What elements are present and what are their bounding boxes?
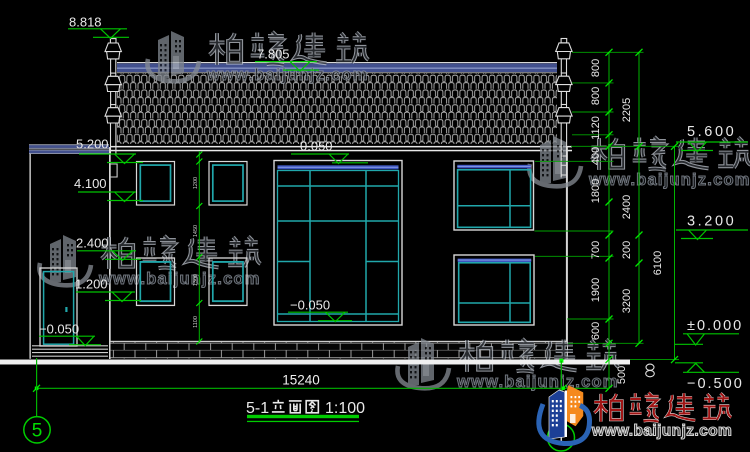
svg-text:1450: 1450 <box>193 225 199 237</box>
svg-text:5.200: 5.200 <box>76 137 109 152</box>
svg-text:3.200: 3.200 <box>687 214 736 230</box>
svg-text:5.600: 5.600 <box>687 124 736 140</box>
svg-text:1100: 1100 <box>193 316 199 328</box>
svg-text:600: 600 <box>590 322 602 340</box>
svg-text:5: 5 <box>32 421 43 442</box>
svg-text:6100: 6100 <box>652 251 664 275</box>
svg-text:0.050: 0.050 <box>300 139 333 154</box>
svg-text:7.805: 7.805 <box>257 47 290 62</box>
svg-text:−0.050: −0.050 <box>39 322 79 337</box>
svg-text:800: 800 <box>590 87 602 105</box>
svg-text:700: 700 <box>590 241 602 259</box>
svg-text:1120: 1120 <box>590 116 602 140</box>
svg-text:1900: 1900 <box>590 278 602 302</box>
svg-text:2205: 2205 <box>621 98 633 122</box>
svg-text:1800: 1800 <box>590 179 602 203</box>
svg-text:2400: 2400 <box>621 195 633 219</box>
svg-text:15240: 15240 <box>282 373 320 388</box>
svg-text:1200: 1200 <box>193 177 199 189</box>
svg-text:1.200: 1.200 <box>75 277 108 292</box>
svg-text:200: 200 <box>621 241 633 259</box>
svg-text:−0.050: −0.050 <box>290 298 330 313</box>
svg-text:1:100: 1:100 <box>325 400 365 417</box>
svg-text:2.400: 2.400 <box>76 236 109 251</box>
svg-text:www.baijunjz.com: www.baijunjz.com <box>591 423 732 440</box>
svg-text:4.100: 4.100 <box>74 176 107 191</box>
svg-text:±0.000: ±0.000 <box>687 318 743 334</box>
svg-text:−0.500: −0.500 <box>687 376 744 392</box>
svg-text:5-1: 5-1 <box>246 400 269 417</box>
svg-text:1300: 1300 <box>193 274 199 286</box>
svg-text:800: 800 <box>590 59 602 77</box>
svg-text:3200: 3200 <box>621 289 633 313</box>
svg-text:8.818: 8.818 <box>69 15 102 30</box>
svg-text:400: 400 <box>590 147 602 165</box>
svg-text:500: 500 <box>616 366 628 384</box>
